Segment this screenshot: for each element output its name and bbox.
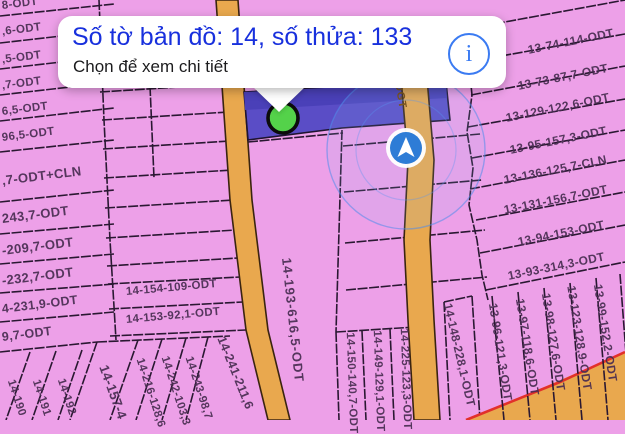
popup-tail: [252, 86, 306, 112]
info-icon[interactable]: i: [448, 33, 490, 75]
popup-subtitle: Chọn để xem chi tiết: [73, 57, 228, 77]
popup-title: Số tờ bản đồ: 14, số thửa: 133: [72, 23, 412, 52]
map-canvas[interactable]: { "popup": { "title": "Số tờ bản đồ: 14,…: [0, 0, 625, 420]
parcel-info-popup[interactable]: Số tờ bản đồ: 14, số thửa: 133 Chọn để x…: [58, 16, 506, 88]
compass-location-icon: [386, 128, 426, 168]
